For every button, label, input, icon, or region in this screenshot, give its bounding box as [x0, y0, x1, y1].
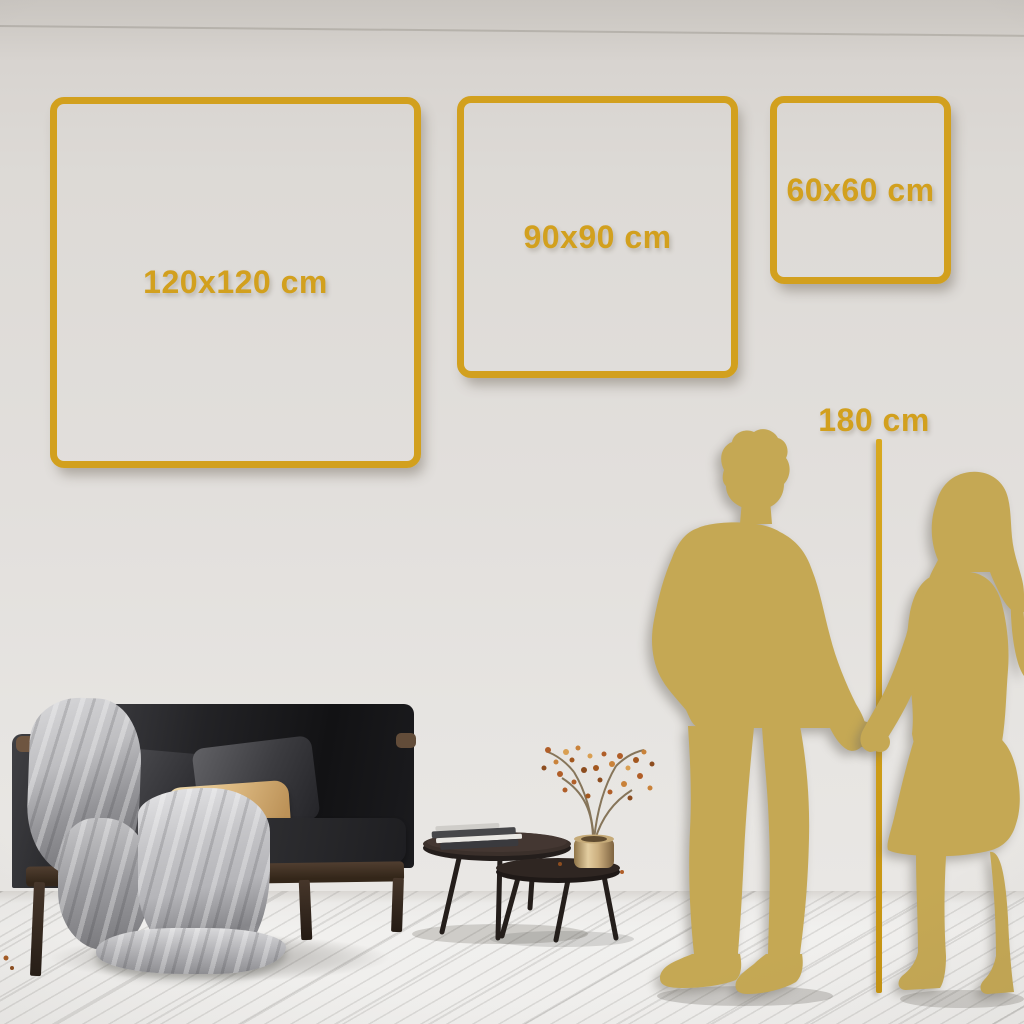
gold-frame-120x120: 120x120 cm: [50, 97, 421, 468]
sofa-wood-rail-right: [396, 733, 416, 748]
gold-frame-90x90: 90x90 cm: [457, 96, 738, 378]
size-guide-mockup: 120x120 cm 90x90 cm 60x60 cm 180 cm: [0, 0, 1024, 1024]
height-reference-label: 180 cm: [799, 402, 949, 439]
frame-label-120x120: 120x120 cm: [143, 264, 328, 301]
sofa-leg: [391, 878, 404, 932]
height-reference-line: [876, 439, 882, 993]
frame-label-60x60: 60x60 cm: [786, 172, 934, 209]
gold-frame-60x60: 60x60 cm: [770, 96, 951, 284]
frame-label-90x90: 90x90 cm: [523, 219, 671, 256]
throw-blanket-pool: [96, 928, 286, 974]
